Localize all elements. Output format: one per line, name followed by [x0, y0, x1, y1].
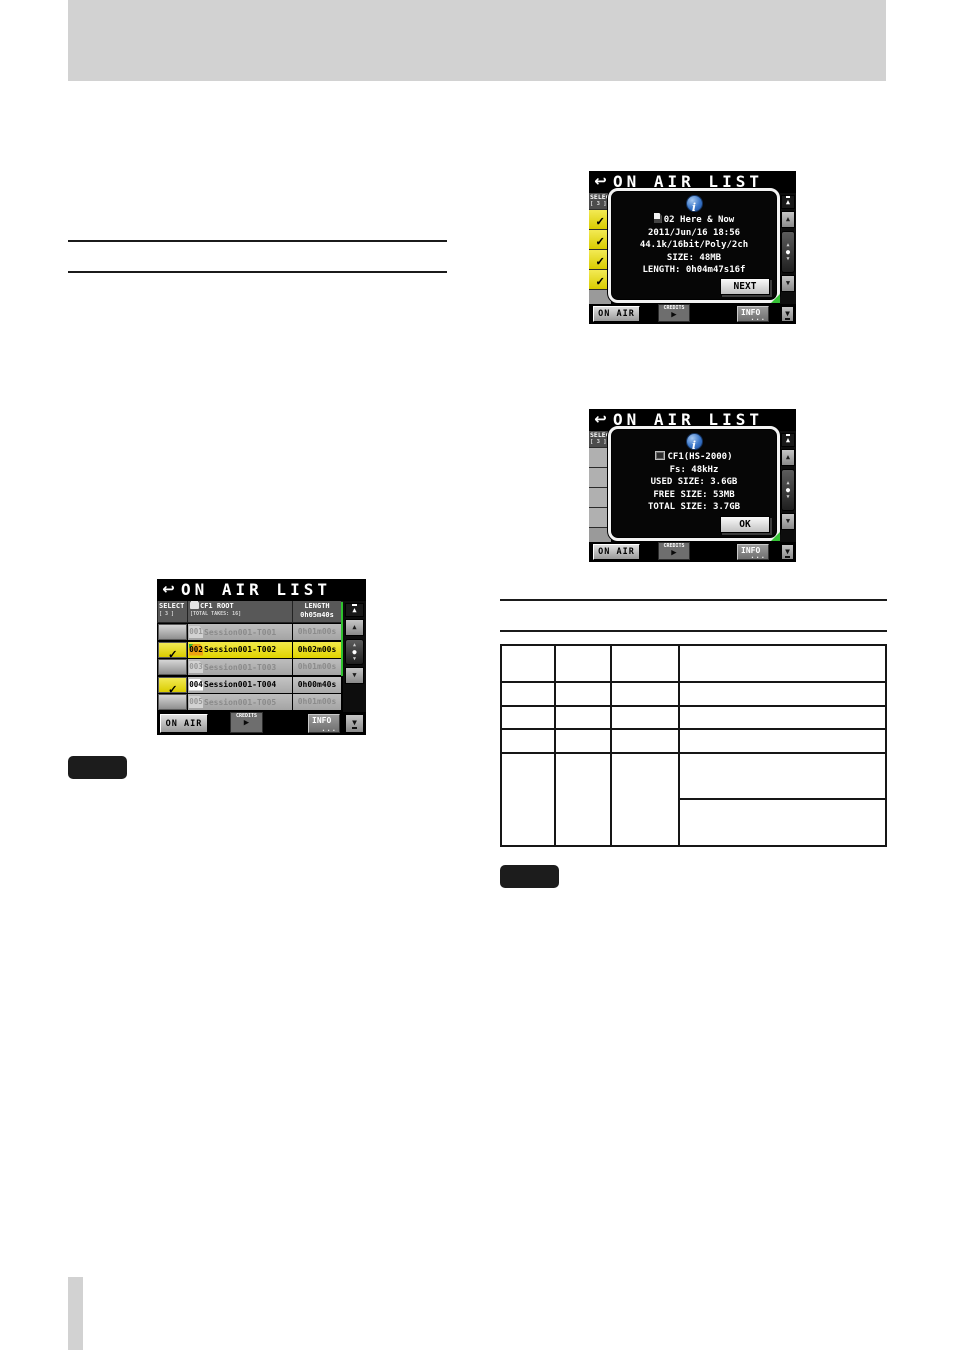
take-length-line: LENGTH: 0h04m47s16f: [611, 264, 777, 277]
check-icon: ✓: [596, 214, 604, 229]
popup-corner-marker: [771, 532, 780, 541]
take-date-line: 2011/Jun/16 18:56: [611, 227, 777, 240]
take-checkbox[interactable]: [158, 694, 187, 710]
take-name-cell[interactable]: 004 Session001-T004: [188, 677, 292, 693]
scroll-bottom-icon: ▼: [785, 547, 790, 558]
return-icon[interactable]: ↩: [591, 409, 610, 429]
scroll-down-button[interactable]: ▼: [781, 275, 795, 292]
credits-button[interactable]: CREDITS ▶: [658, 304, 690, 322]
scrollbar-thumb[interactable]: ▲ ● ▼: [781, 231, 795, 273]
scroll-up-icon: ▲: [352, 623, 356, 631]
thumb-dot-icon: ●: [786, 486, 790, 494]
play-icon: ▶: [231, 719, 262, 728]
table-column-border: [610, 646, 612, 845]
info-icon: i: [686, 195, 703, 212]
scroll-top-icon: ▲: [786, 196, 790, 207]
section-divider: [500, 630, 887, 632]
scroll-to-bottom-button[interactable]: ▼: [345, 714, 364, 733]
folder-icon: [190, 602, 199, 609]
page-header-band: [68, 0, 886, 81]
section-divider: [500, 599, 887, 601]
take-checkbox[interactable]: ✓: [158, 677, 187, 693]
note-badge: [500, 865, 559, 888]
table-column-border: [554, 646, 556, 845]
take-row[interactable]: 005 Session001-T005 0h01m00s: [157, 694, 343, 712]
take-name-cell[interactable]: 005 Session001-T005: [188, 694, 292, 710]
list-header-row: SELECT [ 3 ] CF1 ROOT [TOTAL TAKES: 16] …: [157, 601, 343, 623]
take-name: Session001-T005: [204, 698, 276, 707]
media-fs-line: Fs: 48kHz: [611, 464, 777, 477]
take-checkbox[interactable]: [158, 624, 187, 640]
screen-footer: ON AIR CREDITS ▶ INFO ... ▼: [589, 304, 796, 324]
take-size-line: SIZE: 48MB: [611, 252, 777, 265]
take-checkbox[interactable]: [158, 659, 187, 675]
section-divider: [68, 240, 447, 242]
info-button[interactable]: INFO ...: [308, 714, 340, 733]
scrollbar[interactable]: ▲ ▲ ▲ ● ▼ ▼: [780, 193, 796, 304]
take-length-cell: 0h01m00s: [293, 694, 341, 710]
scrollbar-thumb[interactable]: ▲ ● ▼: [345, 639, 365, 665]
scroll-down-icon: ▼: [352, 671, 356, 679]
scroll-to-bottom-button[interactable]: ▼: [781, 306, 794, 322]
screen-title: ON AIR LIST: [181, 580, 331, 599]
take-row[interactable]: 001 Session001-T001 0h01m00s: [157, 624, 343, 642]
take-number-icon: 003: [189, 661, 203, 673]
page-edge-band: [68, 1277, 83, 1350]
folder-column-header[interactable]: CF1 ROOT [TOTAL TAKES: 16]: [188, 601, 292, 622]
scroll-to-top-button[interactable]: ▲: [781, 433, 795, 447]
table-row-border: [678, 798, 885, 800]
media-name-line: CF1(HS-2000): [611, 451, 777, 464]
note-badge: [68, 756, 127, 779]
take-row[interactable]: ✓ 002 Session001-T002 0h02m00s: [157, 642, 343, 660]
scrollbar[interactable]: ▲ ▲ ▲ ● ▼ ▼: [343, 601, 366, 715]
scroll-down-button[interactable]: ▼: [345, 667, 365, 684]
table-row-border: [502, 705, 885, 707]
take-name: Session001-T002: [204, 645, 276, 654]
section-divider: [68, 271, 447, 273]
take-length-cell: 0h01m00s: [293, 659, 341, 675]
take-format-line: 44.1k/16bit/Poly/2ch: [611, 239, 777, 252]
length-column-header: LENGTH 0h05m40s: [293, 601, 341, 622]
take-name-cell[interactable]: 002 Session001-T002: [188, 642, 292, 658]
screen-media-info: ↩ ON AIR LIST SELECT [ 3 ] ▲ ▲ ▲ ● ▼ ▼ i…: [589, 409, 796, 562]
thumb-down-icon: ▼: [353, 656, 356, 662]
scroll-to-top-button[interactable]: ▲: [781, 195, 795, 209]
screen-footer: ON AIR CREDITS ▶ INFO ... ▼: [157, 712, 366, 735]
take-info-popup: i 02 Here & Now 2011/Jun/16 18:56 44.1k/…: [608, 188, 780, 303]
scroll-up-icon: ▲: [786, 453, 790, 461]
ok-button[interactable]: OK: [720, 516, 770, 533]
media-free-line: FREE SIZE: 53MB: [611, 489, 777, 502]
next-button[interactable]: NEXT: [720, 278, 770, 295]
take-name: Session001-T004: [204, 680, 276, 689]
check-icon: ✓: [596, 274, 604, 289]
credits-button[interactable]: CREDITS ▶: [658, 542, 690, 560]
take-name-cell[interactable]: 003 Session001-T003: [188, 659, 292, 675]
info-dots: ...: [750, 314, 766, 322]
on-air-button[interactable]: ON AIR: [593, 306, 640, 322]
scroll-top-icon: ▲: [786, 434, 790, 445]
media-total-line: TOTAL SIZE: 3.7GB: [611, 501, 777, 514]
scroll-down-icon: ▼: [786, 517, 790, 525]
scroll-down-button[interactable]: ▼: [781, 513, 795, 530]
scrollbar-thumb[interactable]: ▲ ● ▼: [781, 469, 795, 511]
info-dots: ...: [321, 725, 337, 733]
scroll-up-icon: ▲: [786, 215, 790, 223]
table-column-border: [678, 646, 680, 845]
scroll-bottom-icon: ▼: [352, 718, 357, 729]
table-row-border: [502, 752, 885, 754]
media-used-line: USED SIZE: 3.6GB: [611, 476, 777, 489]
credits-button[interactable]: CREDITS ▶: [230, 712, 263, 733]
take-number-icon: 004: [189, 679, 203, 691]
screen-footer: ON AIR CREDITS ▶ INFO ... ▼: [589, 542, 796, 562]
take-title-line: 02 Here & Now: [611, 213, 777, 227]
thumb-dot-icon: ●: [352, 648, 356, 656]
take-file-icon: [654, 213, 662, 223]
take-name-cell[interactable]: 001 Session001-T001: [188, 624, 292, 640]
take-checkbox[interactable]: ✓: [158, 642, 187, 658]
scroll-to-bottom-button[interactable]: ▼: [781, 544, 794, 560]
return-icon[interactable]: ↩: [159, 579, 178, 599]
scroll-up-button[interactable]: ▲: [781, 449, 795, 466]
scroll-top-icon: ▲: [352, 604, 356, 615]
scroll-to-top-button[interactable]: ▲: [345, 603, 365, 617]
return-icon[interactable]: ↩: [591, 171, 610, 191]
take-length-cell: 0h00m40s: [293, 677, 341, 693]
scroll-up-button[interactable]: ▲: [345, 619, 365, 636]
scroll-bottom-icon: ▼: [785, 309, 790, 320]
info-label: INFO: [312, 716, 331, 725]
cf-card-icon: [655, 451, 665, 460]
take-length-cell: 0h02m00s: [293, 642, 341, 658]
thumb-down-icon: ▼: [786, 494, 789, 500]
scrollbar[interactable]: ▲ ▲ ▲ ● ▼ ▼: [780, 431, 796, 542]
screen-title-bar: ↩ ON AIR LIST: [157, 579, 366, 601]
info-button[interactable]: INFO ...: [737, 306, 769, 322]
take-row[interactable]: ✓ 004 Session001-T004 0h00m40s: [157, 677, 343, 695]
screen-on-air-list: ↩ ON AIR LIST SELECT [ 3 ] CF1 ROOT [TOT…: [157, 579, 366, 735]
take-number-icon: 001: [189, 626, 203, 638]
play-icon: ▶: [659, 549, 689, 558]
info-table: [500, 644, 887, 847]
check-icon: ✓: [596, 234, 604, 249]
popup-corner-marker: [771, 294, 780, 303]
info-button[interactable]: INFO ...: [737, 544, 769, 560]
on-air-button[interactable]: ON AIR: [593, 544, 640, 560]
take-name: Session001-T003: [204, 663, 276, 672]
thumb-dot-icon: ●: [786, 248, 790, 256]
check-icon: ✓: [596, 254, 604, 269]
info-icon: i: [686, 433, 703, 450]
info-dots: ...: [750, 552, 766, 560]
scroll-up-button[interactable]: ▲: [781, 211, 795, 228]
screen-take-info: ↩ ON AIR LIST SELECT [ 3 ] ✓ ✓ ✓ ✓ ▲ ▲ ▲…: [589, 171, 796, 324]
take-row[interactable]: 003 Session001-T003 0h01m00s: [157, 659, 343, 677]
table-row-border: [502, 681, 885, 683]
select-column-header: SELECT [ 3 ]: [158, 601, 187, 622]
media-info-popup: i CF1(HS-2000) Fs: 48kHz USED SIZE: 3.6G…: [608, 426, 780, 541]
scroll-down-icon: ▼: [786, 279, 790, 287]
play-icon: ▶: [659, 311, 689, 320]
take-list: 001 Session001-T001 0h01m00s ✓ 002 Sessi…: [157, 624, 343, 712]
on-air-button[interactable]: ON AIR: [160, 714, 208, 733]
current-take-number-icon: 002: [189, 644, 203, 656]
take-number-icon: 005: [189, 696, 203, 708]
table-row-border: [502, 728, 885, 730]
take-name: Session001-T001: [204, 628, 276, 637]
thumb-down-icon: ▼: [786, 256, 789, 262]
take-length-cell: 0h01m00s: [293, 624, 341, 640]
